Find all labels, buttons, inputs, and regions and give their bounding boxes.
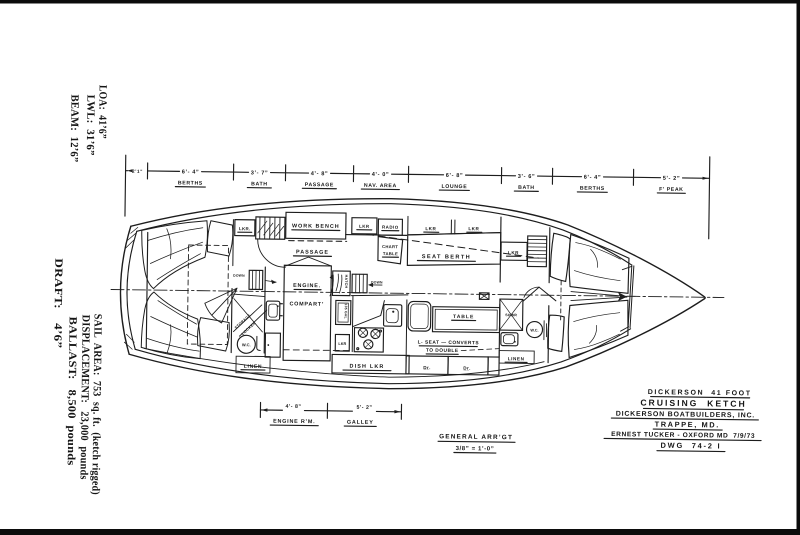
- svg-text:DISPLACEMENT: 23,000 pounds: DISPLACEMENT: 23,000 pounds: [78, 315, 92, 481]
- svg-text:LKR: LKR: [359, 224, 370, 229]
- svg-text:PASSAGE: PASSAGE: [305, 182, 334, 188]
- svg-text:TABLE: TABLE: [383, 251, 398, 256]
- svg-text:L- SEAT — CONVERTS: L- SEAT — CONVERTS: [418, 340, 480, 347]
- svg-text:LKR.: LKR.: [239, 226, 251, 231]
- svg-text:LINEN: LINEN: [508, 356, 525, 361]
- svg-text:DWG 74-2 I: DWG 74-2 I: [661, 441, 722, 451]
- svg-text:SHWR: SHWR: [505, 313, 517, 317]
- svg-text:TRAPPE, MD.: TRAPPE, MD.: [655, 420, 720, 430]
- svg-text:DRAFT: 4’6”: DRAFT: 4’6”: [51, 258, 64, 348]
- svg-text:GENERAL ARR’GT: GENERAL ARR’GT: [439, 433, 513, 441]
- svg-text:3’- 7”: 3’- 7”: [251, 170, 269, 176]
- svg-text:4’- 8”: 4’- 8”: [311, 171, 329, 177]
- svg-text:BERTHS: BERTHS: [580, 186, 605, 192]
- svg-text:W.C.: W.C.: [530, 328, 538, 332]
- svg-text:HATCH: HATCH: [344, 275, 348, 289]
- svg-text:DISH LKR: DISH LKR: [349, 364, 384, 370]
- svg-text:ENGINE R’M.: ENGINE R’M.: [273, 419, 315, 426]
- svg-text:CHART: CHART: [382, 244, 398, 249]
- svg-text:LWL: 31’6”: LWL: 31’6”: [84, 95, 97, 156]
- svg-text:LKR: LKR: [468, 226, 479, 231]
- svg-text:3’- 6”: 3’- 6”: [518, 174, 536, 180]
- svg-text:ENGINE.: ENGINE.: [293, 283, 321, 289]
- svg-text:BALLAST: 8,500 pounds: BALLAST: 8,500 pounds: [65, 316, 79, 466]
- svg-text:BATH: BATH: [251, 181, 267, 187]
- svg-text:D̲r̲.: D̲r̲.: [423, 365, 431, 370]
- svg-text:LOA: 41’6”: LOA: 41’6”: [96, 85, 109, 139]
- svg-text:DICKERSON 41 FOOT: DICKERSON 41 FOOT: [648, 389, 752, 397]
- svg-text:BEAM: 12’6”: BEAM: 12’6”: [68, 94, 81, 162]
- svg-text:6’- 4”: 6’- 4”: [182, 169, 200, 175]
- svg-text:LKR: LKR: [508, 250, 519, 255]
- svg-text:135 GAL: 135 GAL: [344, 304, 348, 319]
- svg-text:LINEN: LINEN: [244, 364, 263, 370]
- svg-text:SEAT BERTH: SEAT BERTH: [422, 254, 471, 261]
- svg-text:PASSAGE: PASSAGE: [296, 249, 329, 255]
- svg-text:DOWN: DOWN: [233, 274, 245, 278]
- svg-text:F’ PEAK: F’ PEAK: [659, 187, 683, 193]
- svg-text:W.C.: W.C.: [242, 342, 251, 347]
- svg-text:NAV. AREA: NAV. AREA: [364, 183, 397, 189]
- svg-text:D̲r̲.: D̲r̲.: [463, 366, 471, 371]
- svg-text:COMPART’: COMPART’: [289, 301, 324, 307]
- svg-text:6’- 4”: 6’- 4”: [584, 175, 602, 181]
- svg-text:BATH: BATH: [518, 185, 534, 191]
- svg-text:CRUISING KETCH: CRUISING KETCH: [640, 397, 747, 408]
- svg-text:LOUNGE: LOUNGE: [441, 184, 467, 190]
- svg-text:4’- 8”: 4’- 8”: [285, 404, 301, 410]
- svg-text:GALLEY: GALLEY: [347, 420, 374, 426]
- svg-text:TO DOUBLE: TO DOUBLE: [426, 348, 459, 354]
- svg-text:WORK BENCH: WORK BENCH: [292, 223, 340, 230]
- svg-text:5’- 2”: 5’- 2”: [356, 405, 372, 411]
- svg-text:6’- 8”: 6’- 8”: [446, 173, 464, 179]
- svg-text:4’- 0”: 4’- 0”: [372, 172, 390, 178]
- svg-text:3/8” = 1’-0”: 3/8” = 1’-0”: [456, 446, 495, 453]
- svg-text:LKR: LKR: [425, 226, 436, 231]
- svg-text:RADIO: RADIO: [382, 225, 399, 230]
- svg-text:LKR: LKR: [338, 342, 346, 346]
- svg-text:TABLE: TABLE: [453, 314, 474, 320]
- svg-text:2’1”: 2’1”: [132, 169, 143, 174]
- svg-text:BERTHS: BERTHS: [178, 180, 203, 186]
- svg-text:5’- 2”: 5’- 2”: [663, 176, 681, 182]
